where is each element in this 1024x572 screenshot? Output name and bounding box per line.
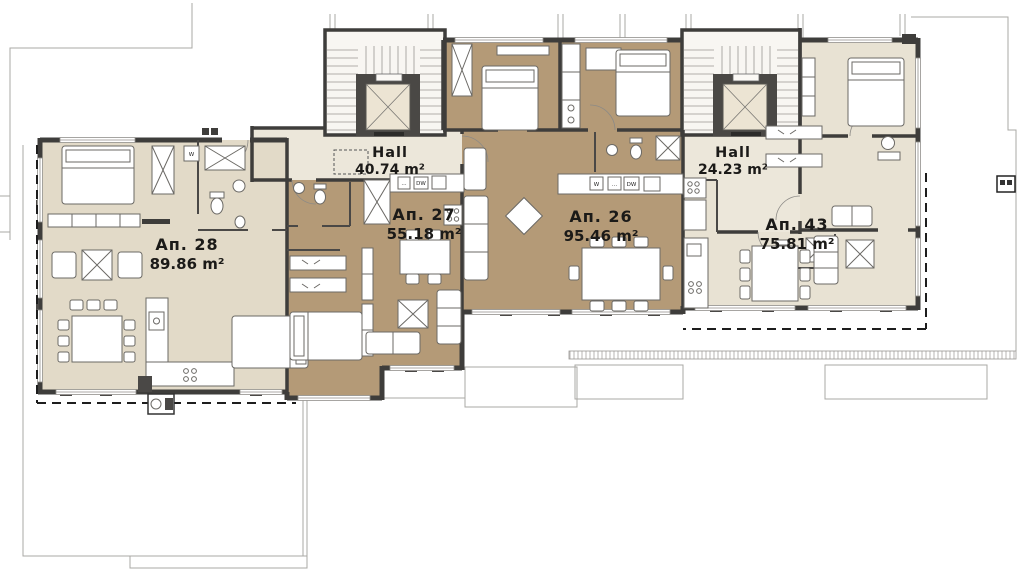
bed-symbol [62,146,134,204]
entry-panel [211,128,218,135]
toilet-symbol [314,184,326,204]
coffee-table-symbol [398,300,428,328]
wardrobe-symbol [364,180,390,224]
planter-box [825,365,987,399]
shower-symbol [656,136,680,160]
svg-text:...: ... [401,181,406,187]
hall-left-area: 40.74 m² [355,162,425,178]
sofa-symbol [464,148,488,280]
coffee-table-symbol [82,250,112,280]
loveseat-symbol [832,206,872,226]
closet-strip-symbol [802,58,815,116]
unit-ap28-area: 89.86 m² [150,255,225,273]
unit-ap27-area: 55.18 m² [387,225,462,243]
hall-right-label: Hall [715,145,751,161]
svg-text:...: ... [612,182,617,188]
hall-right-area: 24.23 m² [698,162,768,178]
toilet-symbol [630,138,642,159]
armchair-symbol [52,252,76,278]
wardrobe-symbol [452,44,472,96]
kitchen-counter-symbol [684,238,708,308]
svg-text:DW: DW [627,182,637,188]
planter-box [575,365,683,399]
sink-symbol [233,180,245,192]
unit-ap43-label: Ап. 43 [765,215,828,234]
bed-symbol [290,312,362,360]
cabinet-symbol [497,46,549,55]
bed-symbol [482,66,538,130]
corner-wall-block [902,34,916,44]
unit-ap26-label: Ап. 26 [569,207,632,226]
washer-symbol: W [184,146,199,161]
dining-table-symbol [740,246,810,301]
dining-table-symbol [569,237,673,311]
unit-ap27-label: Ап. 27 [392,205,455,224]
bidet-symbol [235,216,245,228]
toilet-symbol [210,192,224,214]
sink-symbol [294,183,305,194]
terrace-railing [569,351,1016,359]
floor-plan-drawing: W [0,0,1024,572]
stairwell-right [682,30,800,136]
bed-symbol [616,50,670,116]
stairwell-left [325,30,445,136]
floor-plan-page: W [0,0,1024,572]
svg-text:W: W [189,152,195,158]
unit-ap26-area: 95.46 m² [564,227,639,245]
unit-ap28-label: Ап. 28 [155,235,218,254]
shelf-column-symbol [562,44,580,128]
sink-symbol [607,145,618,156]
terrace-step [465,367,577,407]
utility-meter-box [997,176,1015,192]
armchair-symbol [118,252,142,278]
coffee-table-symbol [846,240,874,268]
bed-symbol [848,58,904,126]
entry-panel [202,128,209,135]
hall-left-label: Hall [372,145,408,161]
elevator-left [356,74,420,136]
svg-text:DW: DW [416,181,426,187]
wardrobe-symbol [152,146,174,194]
unit-ap43-area: 75.81 m² [760,235,835,253]
shower-symbol [205,146,245,170]
svg-text:W: W [594,182,600,188]
